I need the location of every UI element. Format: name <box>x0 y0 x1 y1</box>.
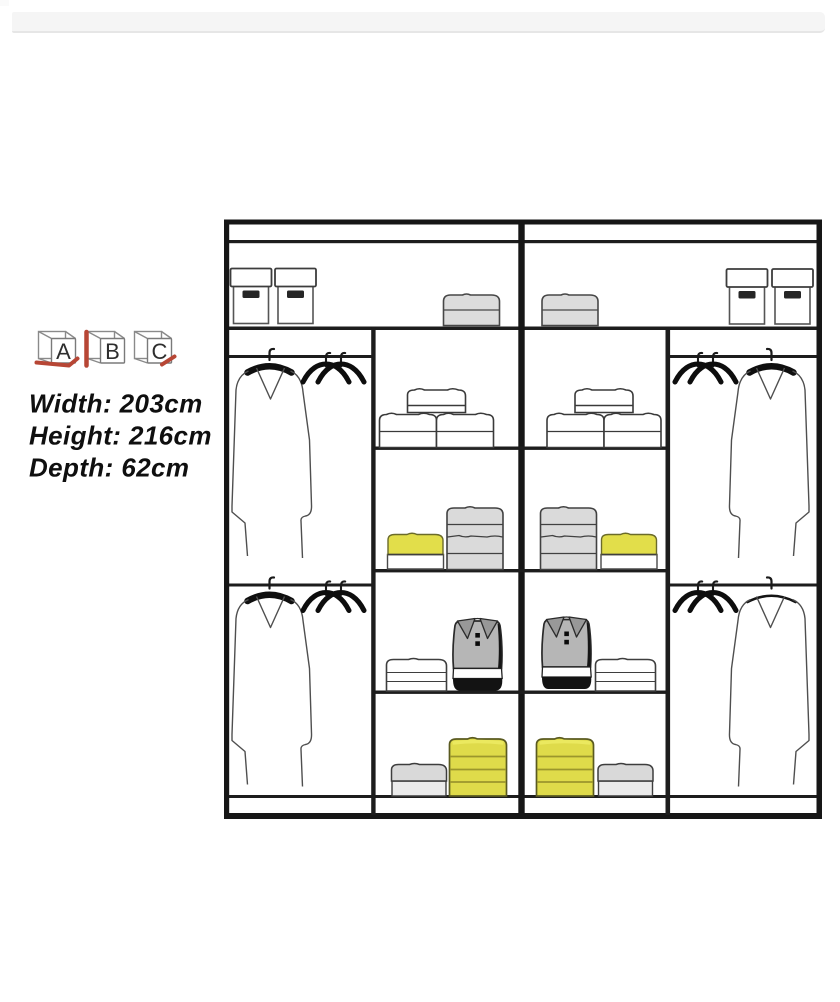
svg-text:B: B <box>105 339 120 364</box>
svg-text:Depth: 62cm: Depth: 62cm <box>29 453 189 483</box>
svg-text:Height: 216cm: Height: 216cm <box>29 421 212 451</box>
svg-text:Width: 203cm: Width: 203cm <box>29 389 203 419</box>
svg-text:A: A <box>56 339 71 364</box>
